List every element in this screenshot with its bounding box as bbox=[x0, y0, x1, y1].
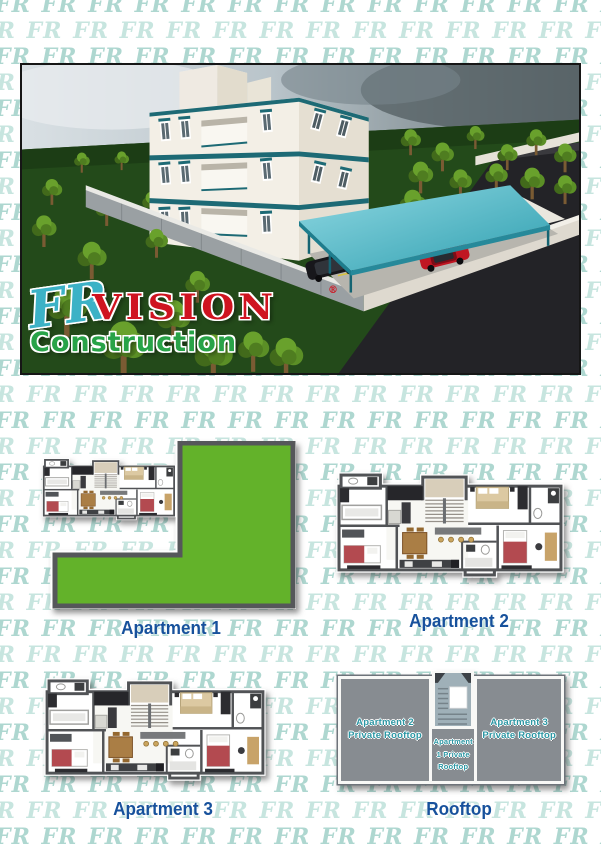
rooftop-center-section: Apartment 1 Private Rooftop bbox=[429, 679, 477, 781]
building-render: FR VISION ® Construction bbox=[20, 63, 581, 375]
rooftop-right-section: Apartment 3 Private Rooftop bbox=[477, 679, 561, 781]
fr-watermark-row: FR FR FR FR FR FR FR FR FR FR FR FR FR F… bbox=[0, 824, 601, 850]
apartment-3-plan-drawing bbox=[44, 677, 266, 781]
fr-watermark-row: FR FR FR FR FR FR FR FR FR FR FR FR FR F… bbox=[0, 408, 601, 434]
stairs-icon bbox=[435, 673, 471, 726]
apartment-1-plan-drawing bbox=[40, 441, 296, 609]
rooftop-label: Rooftop bbox=[352, 799, 567, 820]
rooftop-left-label-line2: Private Rooftop bbox=[348, 731, 422, 742]
fr-watermark-row: FR FR FR FR FR FR FR FR FR FR FR FR FR F… bbox=[0, 0, 601, 18]
registered-mark: ® bbox=[328, 285, 338, 296]
apartment-2-plan-drawing bbox=[336, 471, 564, 578]
fr-watermark-row: FR FR FR FR FR FR FR FR FR FR FR FR FR F… bbox=[0, 642, 601, 668]
apartment-3-floorplan bbox=[44, 677, 266, 781]
vision-construction-logo: FR VISION ® Construction bbox=[26, 273, 346, 373]
rooftop-right-label-line2: Private Rooftop bbox=[482, 731, 556, 742]
rooftop-left-label-line1: Apartment 2 bbox=[348, 718, 422, 729]
rooftop-center-label-line2: 1 Private bbox=[437, 751, 470, 760]
apartment-1-label: Apartment 1 bbox=[64, 618, 279, 639]
rooftop-stairwell bbox=[432, 671, 474, 729]
rooftop-center-label-line1: Apartment bbox=[434, 738, 473, 747]
apartment-3-label: Apartment 3 bbox=[56, 799, 271, 820]
brand-name: VISION bbox=[92, 287, 277, 328]
apartment-2-label: Apartment 2 bbox=[352, 611, 567, 632]
rooftop-left-section: Apartment 2 Private Rooftop bbox=[341, 679, 429, 781]
fr-watermark-row: FR FR FR FR FR FR FR FR FR FR FR FR FR F… bbox=[0, 18, 601, 44]
brand-tagline: Construction bbox=[30, 327, 237, 358]
apartment-1-floorplan bbox=[40, 441, 296, 609]
rooftop-floorplan: Apartment 2 Private Rooftop Apartment bbox=[338, 676, 564, 784]
fr-watermark-row: FR FR FR FR FR FR FR FR FR FR FR FR FR F… bbox=[0, 382, 601, 408]
apartment-2-floorplan bbox=[336, 471, 564, 578]
rooftop-right-label-line1: Apartment 3 bbox=[482, 718, 556, 729]
rooftop-center-label-line3: Rooftop bbox=[438, 763, 468, 772]
